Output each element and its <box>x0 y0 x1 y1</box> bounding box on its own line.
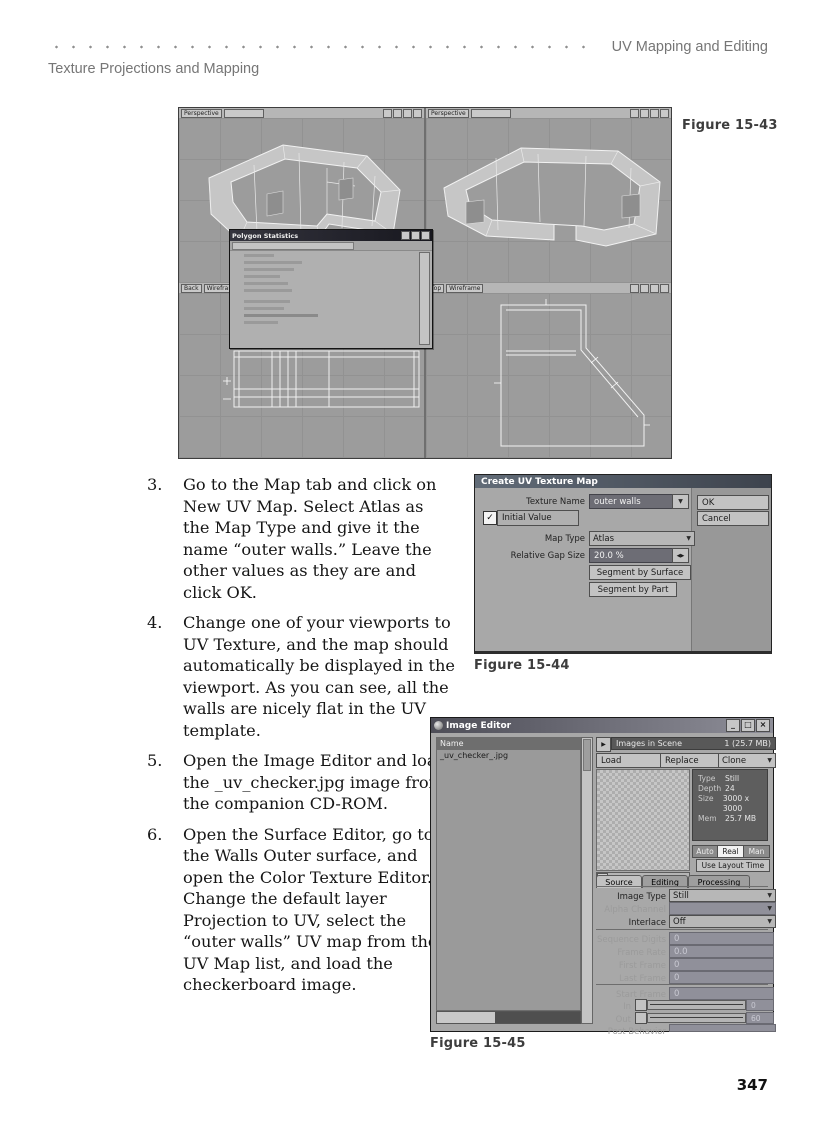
section-divider <box>596 929 768 930</box>
first-frame-label: First Frame <box>596 961 666 971</box>
check-icon: ✓ <box>486 513 494 523</box>
list-item <box>244 254 274 257</box>
in-slider[interactable] <box>647 1000 746 1010</box>
list-item-selected <box>244 314 318 317</box>
segment-by-part-button[interactable]: Segment by Part <box>589 582 677 597</box>
step-item: 4. Change one of your viewports to UV Te… <box>147 612 455 741</box>
image-info-panel: TypeStill Depth24 Size3000 x 3000 Mem25.… <box>692 769 768 841</box>
book-page: UV Mapping and Editing Texture Projectio… <box>0 0 816 1123</box>
pan-icon[interactable] <box>383 109 392 118</box>
chapter-title: UV Mapping and Editing <box>612 39 768 55</box>
scrollbar[interactable] <box>419 252 430 345</box>
view-select[interactable]: Perspective <box>181 109 222 118</box>
section-divider <box>596 984 768 985</box>
modeler-screenshot: Perspective <box>178 107 672 459</box>
initial-value-label[interactable]: Initial Value <box>497 510 579 526</box>
frame-rate-field: 0.0 <box>669 945 774 958</box>
step-number: 6. <box>147 824 183 996</box>
expand-icon[interactable] <box>660 109 669 118</box>
image-preview[interactable] <box>596 769 690 871</box>
tab-divider <box>596 886 768 887</box>
post-behavior-dropdown <box>669 1024 776 1032</box>
replace-button[interactable]: Replace <box>660 753 722 768</box>
close-icon[interactable] <box>421 231 430 240</box>
expand-icon[interactable] <box>413 109 422 118</box>
viewport-bottom-right: Top Wireframe <box>426 283 671 458</box>
texture-name-dropdown[interactable]: ▼ <box>672 494 689 509</box>
in-stepper[interactable] <box>635 999 647 1011</box>
cancel-button[interactable]: Cancel <box>697 511 769 526</box>
minimize-icon[interactable]: _ <box>726 719 740 732</box>
rotate-icon[interactable] <box>393 109 402 118</box>
list-item <box>244 321 278 324</box>
shade-select[interactable]: Wireframe <box>446 284 483 293</box>
rotate-icon[interactable] <box>640 284 649 293</box>
spinner-icon[interactable]: ◀▶ <box>672 548 689 563</box>
step-text: Go to the Map tab and click on New UV Ma… <box>183 474 455 603</box>
top-wireframe <box>426 293 671 458</box>
window-title: Image Editor <box>446 721 511 731</box>
maximize-icon[interactable] <box>411 231 420 240</box>
list-item <box>244 300 290 303</box>
step-text: Change one of your viewports to UV Textu… <box>183 612 455 741</box>
figure-caption-44: Figure 15-44 <box>474 658 570 673</box>
map-type-label: Map Type <box>475 534 585 544</box>
pan-icon[interactable] <box>630 109 639 118</box>
type-value: Still <box>725 774 739 784</box>
load-button[interactable]: Load <box>596 753 664 768</box>
list-item <box>244 275 280 278</box>
progress-segment-light <box>437 1012 495 1023</box>
post-behavior-label: Post Behavior <box>596 1027 666 1037</box>
zoom-icon[interactable] <box>650 109 659 118</box>
chevron-down-icon: ▼ <box>686 535 691 542</box>
pan-icon[interactable] <box>630 284 639 293</box>
last-frame-field: 0 <box>669 971 774 984</box>
image-list-panel: Name _uv_checker_.jpg <box>436 737 581 1011</box>
list-item <box>244 268 294 271</box>
viewport-canvas[interactable] <box>426 118 671 283</box>
statistics-filter-field[interactable] <box>232 242 354 250</box>
view-select[interactable]: Back <box>181 284 202 293</box>
image-editor-window: Image Editor _ □ × Name _uv_checker_.jpg… <box>430 717 774 1032</box>
clone-dropdown[interactable]: Clone ▼ <box>718 753 776 768</box>
step-number: 4. <box>147 612 183 741</box>
viewport-buttons <box>630 109 669 118</box>
start-frame-label: Start Frame <box>596 990 666 1000</box>
statistics-list[interactable] <box>230 250 420 348</box>
out-label: Out <box>607 1015 631 1025</box>
step-text: Open the Surface Editor, go to the Walls… <box>183 824 455 996</box>
texture-name-field[interactable]: outer walls <box>589 494 677 509</box>
list-item <box>244 307 284 310</box>
use-layout-time-button[interactable]: Use Layout Time <box>696 859 770 872</box>
interlace-label: Interlace <box>596 918 666 928</box>
last-frame-label: Last Frame <box>596 974 666 984</box>
image-type-label: Image Type <box>596 892 666 902</box>
chevron-down-icon: ▼ <box>767 905 772 912</box>
size-label: Size <box>698 794 723 814</box>
list-item <box>244 289 292 292</box>
images-in-scene-label: Images in Scene <box>616 739 682 748</box>
figure-caption-43: Figure 15-43 <box>682 118 778 133</box>
alpha-channel-dropdown: ▼ <box>669 902 776 915</box>
clone-label: Clone <box>722 756 746 766</box>
segment-by-surface-button[interactable]: Segment by Surface <box>589 565 691 580</box>
mem-label: Mem <box>698 814 725 824</box>
mem-value: 25.7 MB <box>725 814 756 824</box>
dotted-leader <box>48 44 598 50</box>
depth-value: 24 <box>725 784 735 794</box>
statistics-title: Polygon Statistics <box>232 232 298 240</box>
dialog-title: Create UV Texture Map <box>481 477 598 487</box>
load-progress-bar <box>436 1011 581 1024</box>
type-label: Type <box>698 774 725 784</box>
close-icon[interactable]: × <box>756 719 770 732</box>
view-select[interactable]: Perspective <box>428 109 469 118</box>
map-type-dropdown[interactable]: Atlas ▼ <box>589 531 695 546</box>
out-value-field: 60 <box>746 1012 774 1024</box>
create-uv-texture-map-dialog: Create UV Texture Map Texture Name outer… <box>474 474 772 654</box>
out-slider[interactable] <box>647 1013 746 1023</box>
viewport-canvas[interactable] <box>426 293 671 458</box>
statistics-titlebar[interactable]: Polygon Statistics <box>230 230 432 241</box>
page-number: 347 <box>700 1076 768 1094</box>
step-text: Open the Image Editor and load the _uv_c… <box>183 750 455 815</box>
scrollbar[interactable] <box>581 737 593 1024</box>
out-stepper[interactable] <box>635 1012 647 1024</box>
image-editor-icon <box>434 721 443 730</box>
viewport-buttons <box>383 109 422 118</box>
image-type-value: Still <box>673 891 689 901</box>
step-number: 5. <box>147 750 183 815</box>
step-item: 3. Go to the Map tab and click on New UV… <box>147 474 455 603</box>
chevron-down-icon: ▼ <box>767 918 772 925</box>
auto-button[interactable]: Auto <box>692 845 718 858</box>
sequence-digits-label: Sequence Digits <box>596 935 666 945</box>
window-titlebar[interactable]: Image Editor _ □ × <box>431 718 773 733</box>
running-header: UV Mapping and Editing <box>48 38 768 56</box>
perspective-wireframe <box>426 118 671 283</box>
dialog-titlebar[interactable]: Create UV Texture Map <box>475 475 771 488</box>
progress-segment-dark <box>495 1012 580 1023</box>
image-list-item[interactable]: _uv_checker_.jpg <box>437 750 580 761</box>
step-number: 3. <box>147 474 183 603</box>
real-button[interactable]: Real <box>717 845 744 858</box>
viewport-buttons <box>630 284 669 293</box>
alpha-channel-label: Alpha Channel <box>596 905 666 915</box>
relative-gap-size-label: Relative Gap Size <box>475 551 585 561</box>
step-list: 3. Go to the Map tab and click on New UV… <box>147 474 455 1005</box>
list-item <box>244 282 288 285</box>
depth-label: Depth <box>698 784 725 794</box>
in-label: In <box>607 1002 631 1012</box>
relative-gap-size-field[interactable]: 20.0 % <box>589 548 677 563</box>
zoom-icon[interactable] <box>403 109 412 118</box>
ok-button[interactable]: OK <box>697 495 769 510</box>
section-title: Texture Projections and Mapping <box>48 61 259 77</box>
figure-caption-45: Figure 15-45 <box>430 1036 526 1051</box>
shade-select[interactable] <box>224 109 264 118</box>
interlace-dropdown[interactable]: Off ▼ <box>669 915 776 928</box>
first-frame-field: 0 <box>669 958 774 971</box>
expand-icon[interactable] <box>660 284 669 293</box>
rotate-icon[interactable] <box>640 109 649 118</box>
map-type-value: Atlas <box>593 534 614 544</box>
size-value: 3000 x 3000 <box>723 794 767 814</box>
zoom-icon[interactable] <box>650 284 659 293</box>
interlace-value: Off <box>673 917 686 927</box>
statistics-panel: Polygon Statistics <box>229 229 433 349</box>
image-type-dropdown[interactable]: Still ▼ <box>669 889 776 902</box>
chevron-down-icon: ▼ <box>678 498 683 505</box>
minimize-icon[interactable] <box>401 231 410 240</box>
initial-value-checkbox[interactable]: ✓ <box>483 511 497 525</box>
in-value-field: 0 <box>746 999 774 1011</box>
maximize-icon[interactable]: □ <box>741 719 755 732</box>
frame-rate-label: Frame Rate <box>596 948 666 958</box>
shade-select[interactable] <box>471 109 511 118</box>
chevron-down-icon: ▼ <box>767 892 772 899</box>
images-total: 1 (25.7 MB) <box>724 739 771 748</box>
texture-name-label: Texture Name <box>475 497 585 507</box>
viewport-top-right: Perspective <box>426 108 671 283</box>
man-button[interactable]: Man <box>743 845 770 858</box>
play-icon[interactable]: ▶ <box>596 737 611 752</box>
chevron-down-icon: ▼ <box>767 757 772 764</box>
scrollbar-thumb[interactable] <box>583 739 591 771</box>
list-item <box>244 261 302 264</box>
step-item: 6. Open the Surface Editor, go to the Wa… <box>147 824 455 996</box>
name-column-header[interactable]: Name <box>437 738 580 750</box>
sequence-digits-field: 0 <box>669 932 774 945</box>
step-item: 5. Open the Image Editor and load the _u… <box>147 750 455 815</box>
images-in-scene-strip: Images in Scene 1 (25.7 MB) <box>611 737 776 750</box>
